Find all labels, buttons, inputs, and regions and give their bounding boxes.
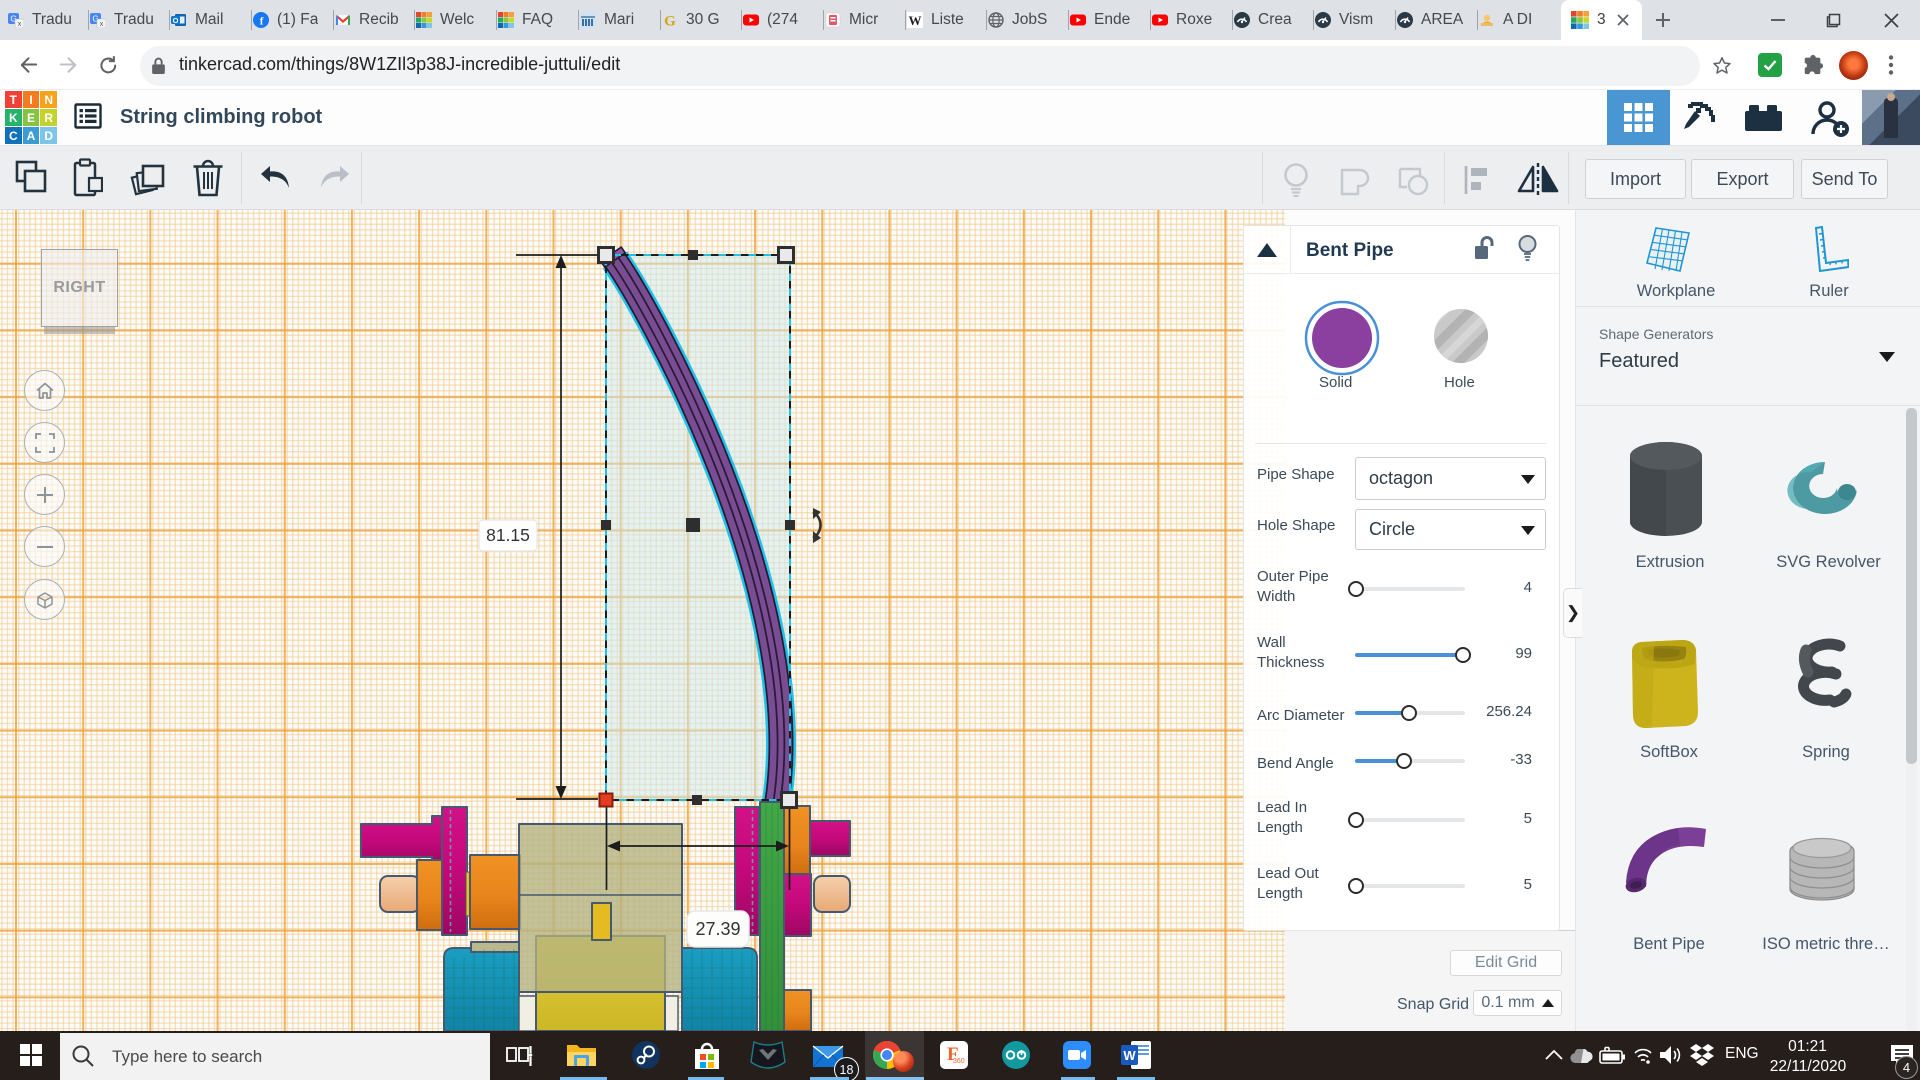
svg-text:W: W [1123,1048,1136,1063]
svg-text:x: x [18,21,22,28]
svg-text:G: G [664,14,676,29]
svg-text:81.15: 81.15 [486,525,530,545]
svg-text:27.39: 27.39 [695,919,740,939]
svg-text:f: f [260,16,264,28]
svg-text:W: W [909,13,922,28]
svg-text:O: O [173,16,179,25]
svg-text:x: x [100,21,104,28]
